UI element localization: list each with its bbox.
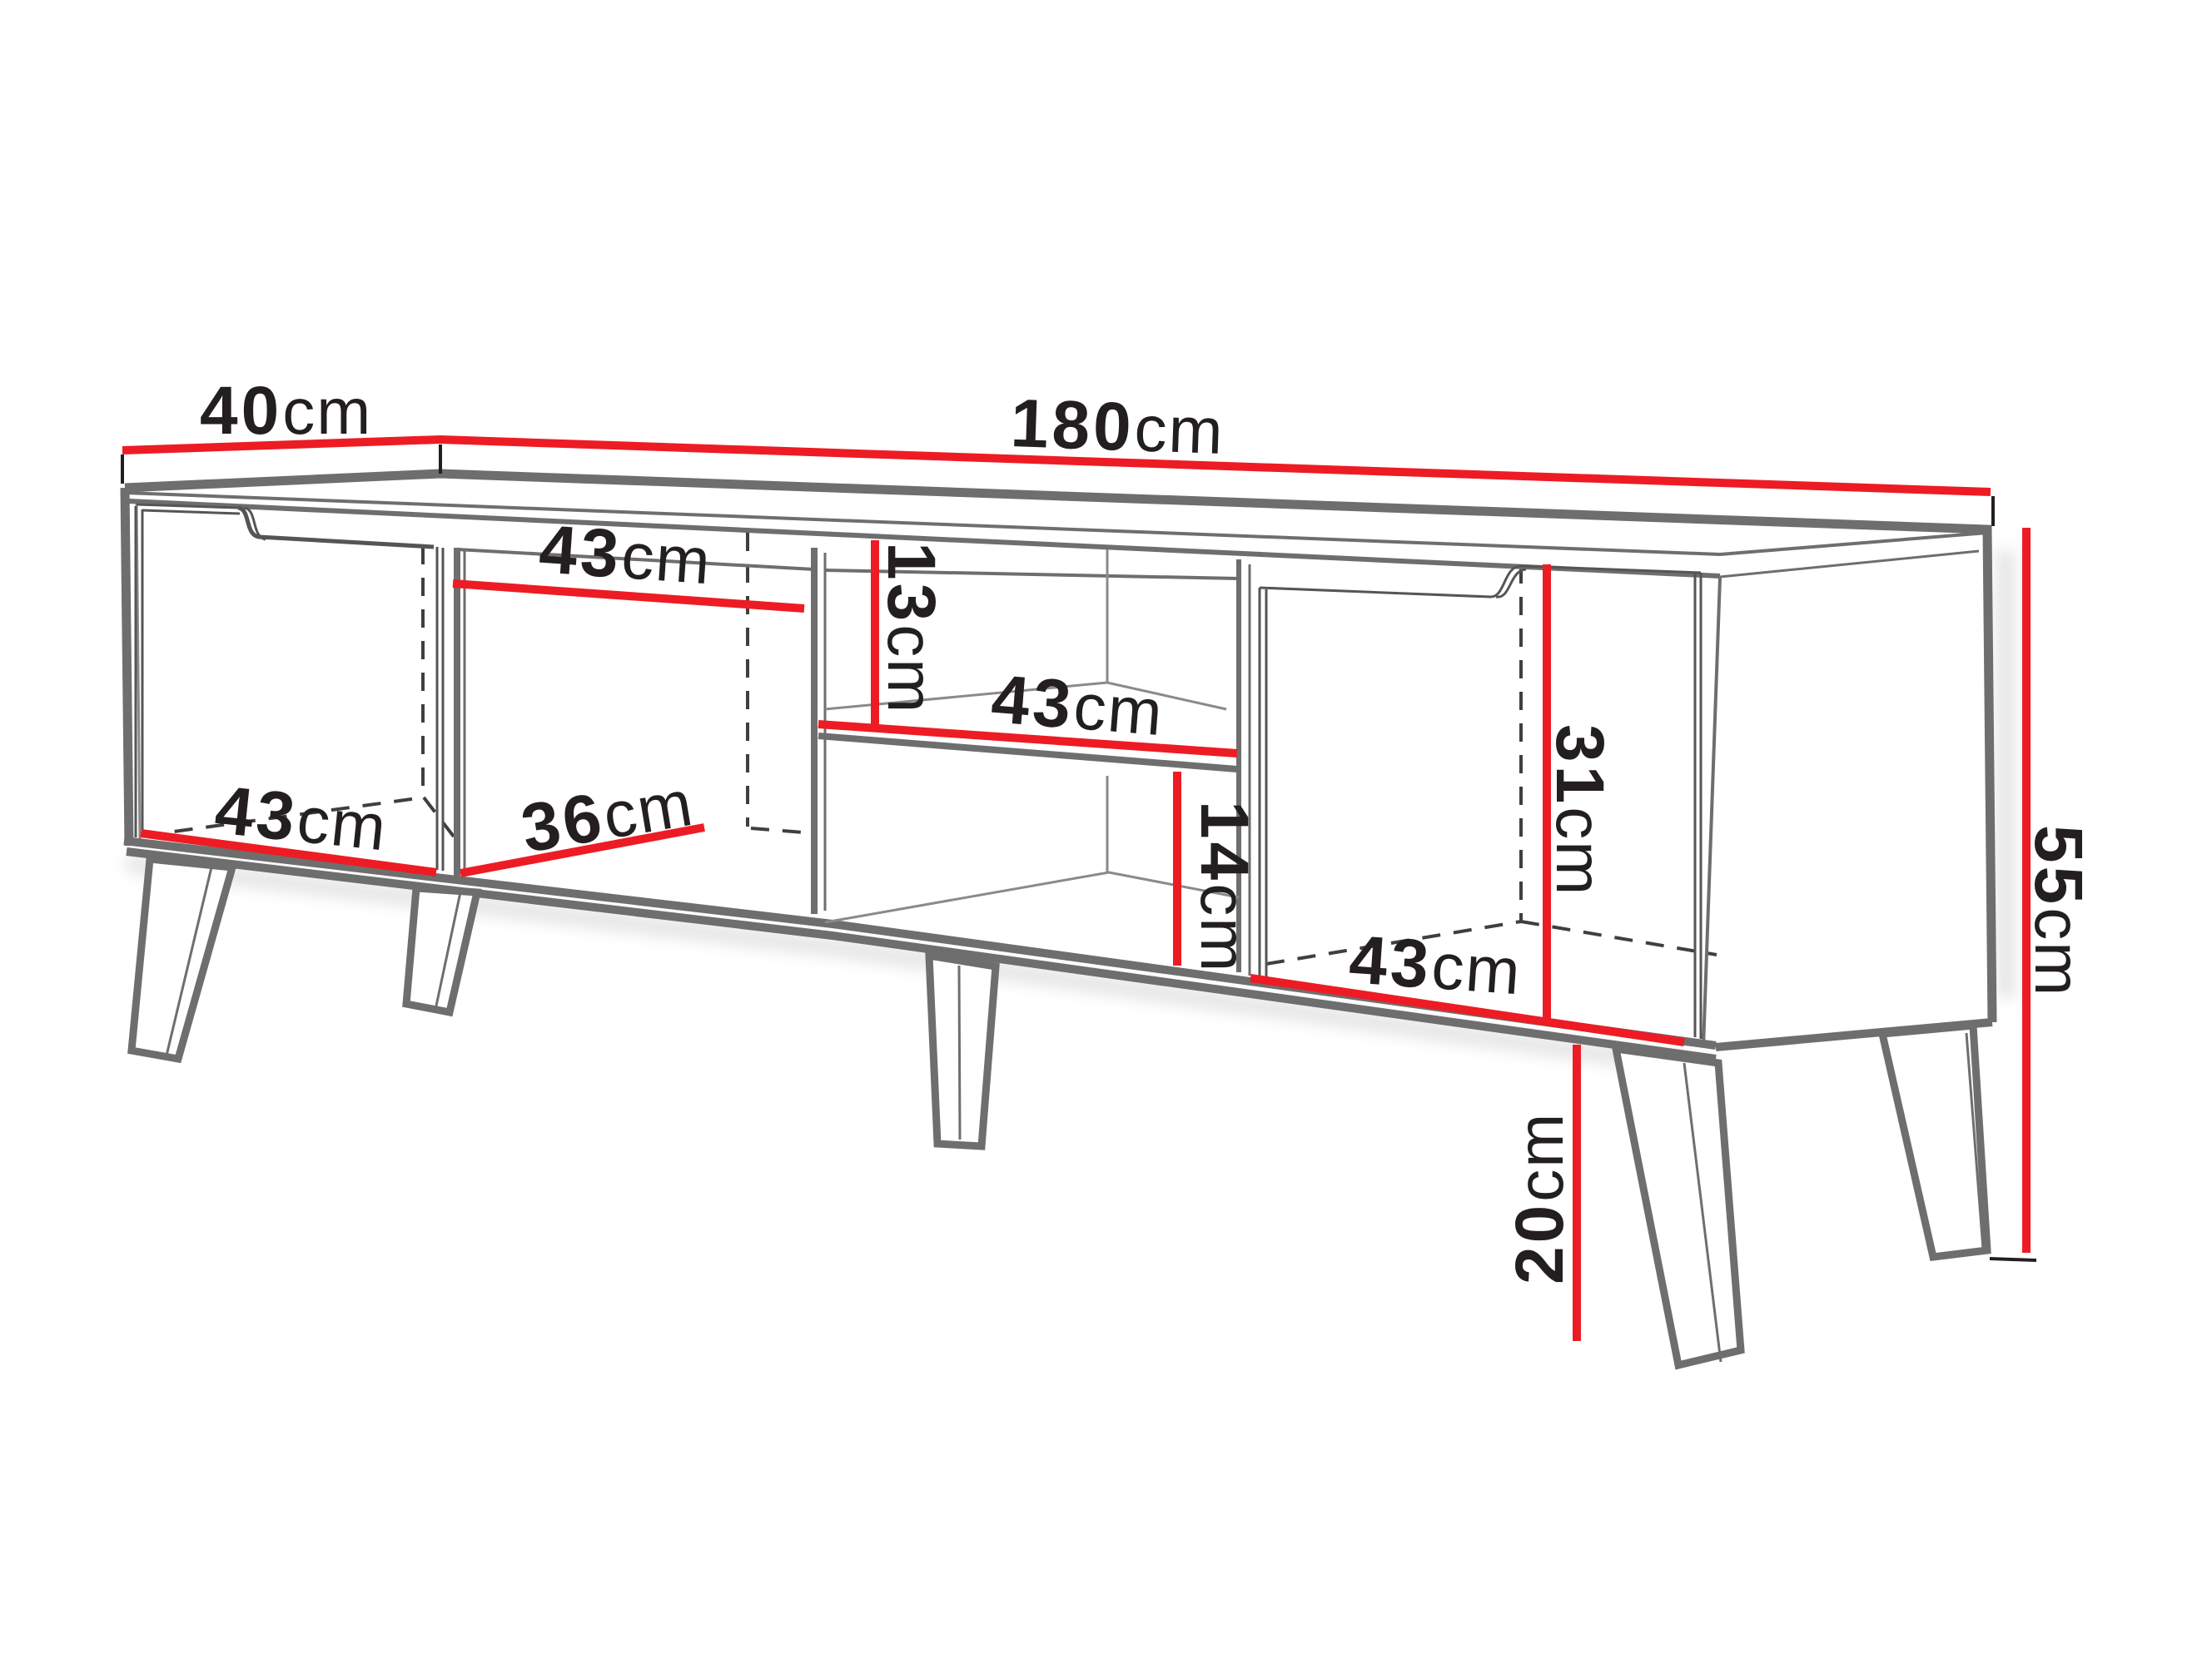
svg-text:31cm: 31cm <box>1542 724 1618 897</box>
svg-text:55cm: 55cm <box>2021 825 2096 997</box>
svg-text:40cm: 40cm <box>200 373 372 449</box>
svg-text:20cm: 20cm <box>1502 1112 1578 1284</box>
svg-text:180cm: 180cm <box>1009 385 1225 469</box>
svg-text:43cm: 43cm <box>989 661 1167 750</box>
svg-text:13cm: 13cm <box>873 542 949 714</box>
svg-text:43cm: 43cm <box>1347 921 1524 1009</box>
svg-text:43cm: 43cm <box>537 511 714 599</box>
svg-text:14cm: 14cm <box>1186 801 1262 973</box>
